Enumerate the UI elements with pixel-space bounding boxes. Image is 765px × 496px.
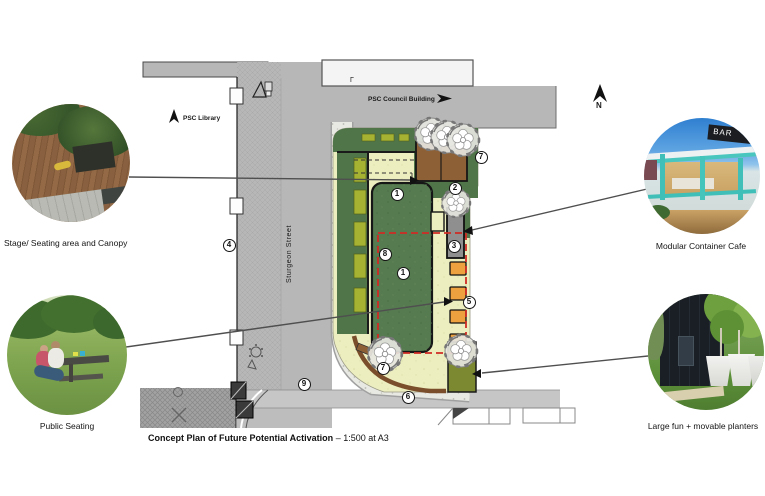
caption-scale: – 1:500 at A3 xyxy=(336,433,389,443)
concept-plan-page: PSC Library PSC Council Building Sturgeo… xyxy=(0,0,765,496)
building-mark: Γ xyxy=(350,77,354,84)
plan-marker-6: 6 xyxy=(402,391,415,404)
photo-stage-seating xyxy=(12,104,130,222)
callout-label-planters: Large fun + movable planters xyxy=(648,421,758,431)
plan-marker-3: 3 xyxy=(448,240,461,253)
footpath-hatch xyxy=(237,62,281,392)
leader-cafe xyxy=(472,189,647,230)
photo-shrub xyxy=(646,205,670,220)
north-label: N xyxy=(596,101,602,110)
leader-planters xyxy=(482,356,648,373)
photo-large-planters xyxy=(648,294,764,410)
plan-marker-7: 7 xyxy=(475,151,488,164)
callout-label-stage: Stage/ Seating area and Canopy xyxy=(4,238,127,248)
photo-window xyxy=(678,336,694,366)
photo-dog xyxy=(53,160,71,171)
up-arrow-icon xyxy=(169,109,179,123)
street-label: Sturgeon Street xyxy=(286,225,293,283)
plan-marker-2: 2 xyxy=(449,182,462,195)
photo-picnic-items xyxy=(80,351,85,356)
photo-public-seating xyxy=(7,295,127,415)
photo-teal-post xyxy=(700,156,705,200)
plan-marker-9: 9 xyxy=(298,378,311,391)
north-arrow-icon xyxy=(593,84,607,102)
photo-person xyxy=(48,348,64,368)
photo-cafe-counter xyxy=(672,178,714,189)
photo-teal-post xyxy=(738,158,743,200)
photo-treeline xyxy=(93,305,127,339)
callout-label-cafe: Modular Container Cafe xyxy=(656,241,746,251)
photo-container-cafe: BAR xyxy=(644,118,760,234)
plan-marker-1: 1 xyxy=(397,267,410,280)
plan-marker-5: 5 xyxy=(463,296,476,309)
edge-planters xyxy=(354,158,366,312)
council-building-footprint xyxy=(322,60,473,86)
photo-truck xyxy=(644,160,657,180)
photo-planter-box xyxy=(72,141,115,172)
photo-bench xyxy=(59,373,103,381)
lawn-steps xyxy=(431,212,444,231)
photo-pavers xyxy=(12,189,106,222)
callout-label-public-seating: Public Seating xyxy=(40,421,94,431)
photo-table-leg xyxy=(69,364,73,382)
plan-marker-7: 7 xyxy=(377,362,390,375)
plan-marker-1: 1 xyxy=(391,188,404,201)
caption-title: Concept Plan of Future Potential Activat… xyxy=(148,433,333,443)
photo-teal-post xyxy=(660,154,665,200)
drawing-caption: Concept Plan of Future Potential Activat… xyxy=(148,433,389,443)
plan-marker-8: 8 xyxy=(379,248,392,261)
photo-hedge xyxy=(648,302,664,360)
library-label: PSC Library xyxy=(183,115,221,122)
council-label: PSC Council Building xyxy=(368,96,435,103)
photo-picnic-items xyxy=(73,352,78,356)
plan-marker-4: 4 xyxy=(223,239,236,252)
